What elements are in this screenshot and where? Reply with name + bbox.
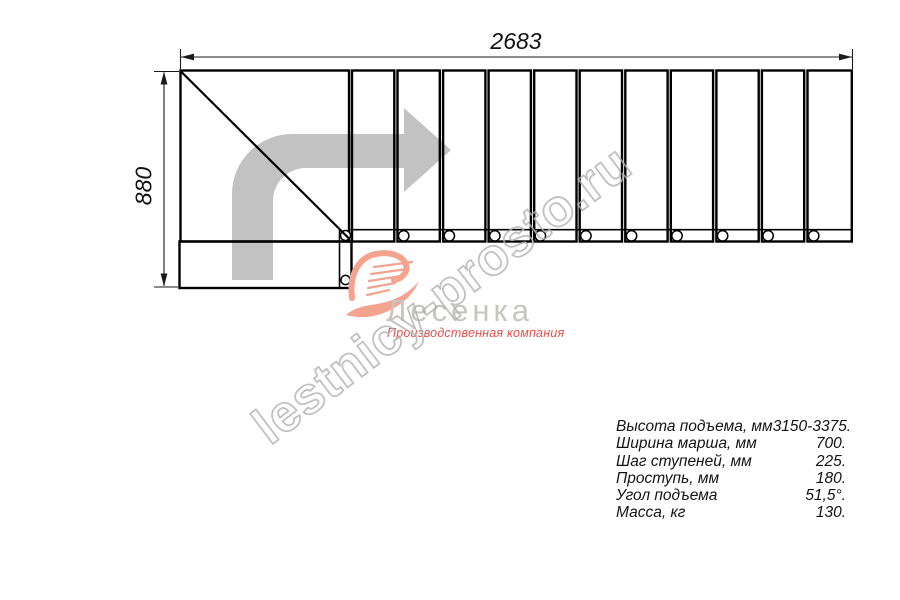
bolt-circle <box>763 231 773 241</box>
spec-row: Проступь, мм 180. <box>616 470 846 487</box>
spec-row: Масса, кг 130. <box>616 504 846 521</box>
height-dimension-label: 880 <box>131 167 157 206</box>
spec-value: 700. <box>816 435 846 452</box>
width-dimension-label: 2683 <box>489 28 541 54</box>
tread-rect <box>762 71 804 242</box>
bolt-circle <box>581 231 591 241</box>
spec-value: 225. <box>816 453 846 470</box>
bolt-circle <box>717 231 727 241</box>
direction-arrow-icon <box>232 108 451 280</box>
spec-row: Ширина марша, мм 700. <box>616 435 846 452</box>
tread-rect <box>625 71 667 242</box>
bolt-circle <box>444 231 454 241</box>
spec-label: Угол подъема <box>616 487 717 504</box>
tread-rect <box>671 71 713 242</box>
spec-value: 180. <box>816 470 846 487</box>
bolt-circle <box>626 231 636 241</box>
dimension-arrowhead <box>839 54 852 61</box>
spec-label: Проступь, мм <box>616 470 719 487</box>
spec-row: Угол подъема 51,5°. <box>616 487 846 504</box>
spec-label: Шаг ступеней, мм <box>616 453 752 470</box>
spec-label: Ширина марша, мм <box>616 435 757 452</box>
tread-rect <box>808 71 852 242</box>
tread-rect <box>716 71 758 242</box>
spec-label: Высота подъема, мм <box>616 418 773 435</box>
spec-label: Масса, кг <box>616 504 685 521</box>
tread-rect <box>443 71 485 242</box>
bolt-circle <box>809 231 819 241</box>
spec-value: 51,5°. <box>805 487 846 504</box>
bolt-circle <box>399 231 409 241</box>
dimension-arrowhead <box>161 274 168 287</box>
spec-value: 130. <box>816 504 846 521</box>
strip-bolt-circle <box>341 275 350 284</box>
spec-row: Шаг ступеней, мм 225. <box>616 453 846 470</box>
stair-drawing-page: 2683 880 Лесенка Производственная компан… <box>0 0 900 600</box>
spec-value: 3150-3375. <box>773 418 851 435</box>
spec-table: Высота подъема, мм 3150-3375. Ширина мар… <box>616 418 846 522</box>
spec-row: Высота подъема, мм 3150-3375. <box>616 418 846 435</box>
dimension-arrowhead <box>161 72 168 85</box>
dimension-arrowhead <box>181 54 194 61</box>
bolt-circle <box>672 231 682 241</box>
